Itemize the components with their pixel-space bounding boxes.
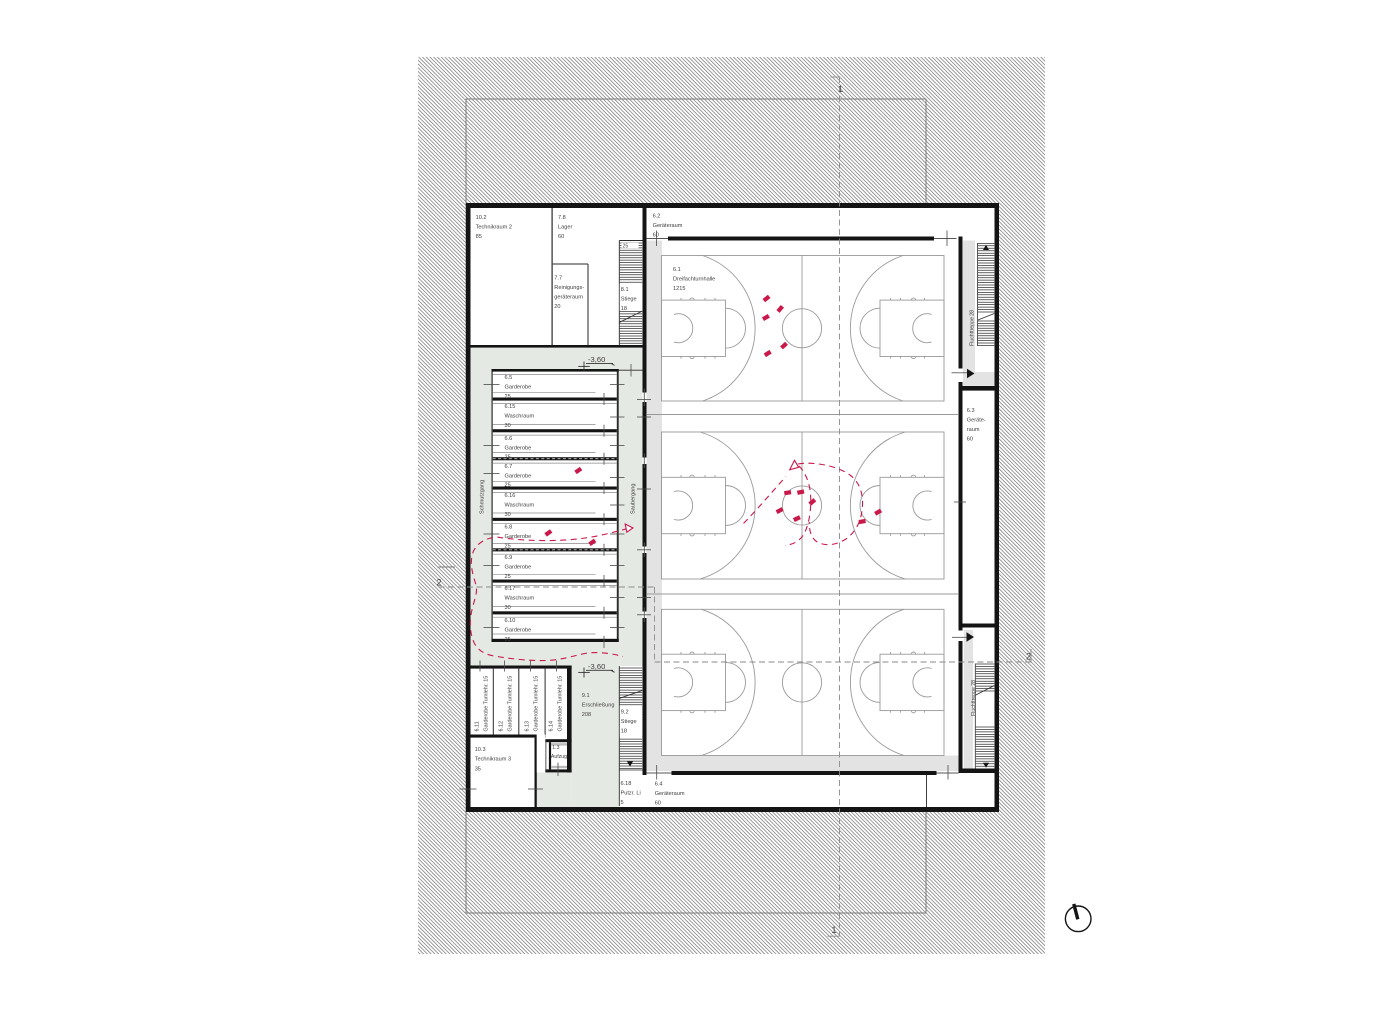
svg-text:Saubergang: Saubergang bbox=[630, 484, 636, 514]
svg-text:60: 60 bbox=[653, 233, 659, 239]
svg-text:6.14: 6.14 bbox=[549, 721, 555, 732]
svg-text:6.13: 6.13 bbox=[524, 721, 530, 732]
svg-text:Fluchttreppe 28: Fluchttreppe 28 bbox=[970, 310, 976, 346]
svg-text:Aufzug: Aufzug bbox=[551, 754, 567, 760]
svg-text:18: 18 bbox=[621, 306, 627, 312]
svg-text:8.1: 8.1 bbox=[621, 287, 629, 293]
svg-text:Geräte-: Geräte- bbox=[967, 418, 986, 424]
svg-text:6.18: 6.18 bbox=[621, 781, 632, 787]
svg-text:25: 25 bbox=[623, 243, 629, 249]
svg-text:-3,60: -3,60 bbox=[588, 662, 605, 671]
svg-text:Geräteraum: Geräteraum bbox=[655, 791, 685, 797]
svg-text:Lager: Lager bbox=[558, 225, 572, 231]
svg-text:1: 1 bbox=[838, 84, 843, 94]
svg-text:Garderobe: Garderobe bbox=[505, 628, 532, 634]
svg-text:6.7: 6.7 bbox=[505, 464, 513, 470]
svg-text:1.3: 1.3 bbox=[552, 745, 559, 751]
svg-text:6.3: 6.3 bbox=[967, 408, 975, 414]
svg-text:Technikraum 2: Technikraum 2 bbox=[476, 225, 512, 231]
svg-text:Waschraum: Waschraum bbox=[505, 596, 535, 602]
svg-text:Garderobe: Garderobe bbox=[505, 473, 532, 479]
svg-text:30: 30 bbox=[505, 512, 511, 518]
svg-text:geräteraum: geräteraum bbox=[554, 294, 583, 300]
svg-text:208: 208 bbox=[582, 712, 591, 718]
svg-text:Garderobe: Garderobe bbox=[505, 565, 532, 571]
svg-text:Schmutzgang: Schmutzgang bbox=[479, 480, 485, 514]
svg-text:5: 5 bbox=[621, 800, 624, 806]
svg-text:18: 18 bbox=[621, 729, 627, 735]
svg-text:Technikraum 3: Technikraum 3 bbox=[475, 757, 511, 763]
svg-text:Garderobe: Garderobe bbox=[505, 385, 532, 391]
svg-text:9.1: 9.1 bbox=[582, 693, 590, 699]
svg-text:6.10: 6.10 bbox=[505, 618, 516, 624]
svg-text:9.2: 9.2 bbox=[621, 710, 629, 716]
svg-text:6.8: 6.8 bbox=[505, 525, 513, 531]
svg-text:6.5: 6.5 bbox=[505, 375, 513, 381]
svg-text:60: 60 bbox=[655, 801, 661, 807]
svg-text:Stiege: Stiege bbox=[621, 297, 637, 303]
svg-text:2: 2 bbox=[1026, 652, 1031, 662]
svg-text:6.9: 6.9 bbox=[505, 555, 513, 561]
svg-text:Erschließung: Erschließung bbox=[582, 703, 615, 709]
svg-text:Waschraum: Waschraum bbox=[505, 414, 535, 420]
svg-text:30: 30 bbox=[505, 423, 511, 429]
svg-text:6.15: 6.15 bbox=[505, 404, 516, 410]
svg-text:25: 25 bbox=[505, 483, 511, 489]
svg-text:Garderobe Turnlehr. 15: Garderobe Turnlehr. 15 bbox=[507, 676, 513, 732]
svg-text:1: 1 bbox=[832, 925, 837, 935]
svg-text:Fluchttreppe 28: Fluchttreppe 28 bbox=[971, 680, 977, 716]
svg-text:6.4: 6.4 bbox=[655, 782, 663, 788]
svg-text:30: 30 bbox=[505, 605, 511, 611]
svg-text:Garderobe: Garderobe bbox=[505, 445, 532, 451]
svg-text:6.12: 6.12 bbox=[498, 721, 504, 732]
svg-text:raum: raum bbox=[967, 427, 980, 433]
svg-text:6.16: 6.16 bbox=[505, 493, 516, 499]
svg-text:25: 25 bbox=[505, 637, 511, 643]
svg-text:10.3: 10.3 bbox=[475, 747, 486, 753]
svg-text:Stiege: Stiege bbox=[621, 719, 637, 725]
svg-text:7.7: 7.7 bbox=[554, 275, 562, 281]
svg-text:60: 60 bbox=[967, 437, 973, 443]
svg-text:35: 35 bbox=[475, 766, 481, 772]
svg-text:Geräteraum: Geräteraum bbox=[653, 223, 683, 229]
svg-text:-3,60: -3,60 bbox=[588, 355, 605, 364]
svg-text:Waschraum: Waschraum bbox=[505, 503, 535, 509]
svg-text:Reinigungs-: Reinigungs- bbox=[554, 285, 584, 291]
svg-text:Garderobe Turnlehr. 15: Garderobe Turnlehr. 15 bbox=[558, 676, 564, 732]
svg-text:25: 25 bbox=[505, 574, 511, 580]
svg-text:Garderobe Turnlehr. 15: Garderobe Turnlehr. 15 bbox=[483, 676, 489, 732]
svg-text:6.1: 6.1 bbox=[673, 267, 681, 273]
svg-text:20: 20 bbox=[554, 304, 560, 310]
svg-text:2: 2 bbox=[437, 578, 442, 588]
svg-text:Garderobe Turnlehr. 15: Garderobe Turnlehr. 15 bbox=[533, 676, 539, 732]
svg-text:60: 60 bbox=[558, 234, 564, 240]
svg-text:7.8: 7.8 bbox=[558, 215, 566, 221]
svg-text:Putzr. Li: Putzr. Li bbox=[621, 791, 641, 797]
svg-text:25: 25 bbox=[505, 394, 511, 400]
svg-text:6.6: 6.6 bbox=[505, 436, 513, 442]
svg-text:10.2: 10.2 bbox=[476, 215, 487, 221]
svg-text:25: 25 bbox=[505, 543, 511, 549]
svg-text:6.2: 6.2 bbox=[653, 214, 661, 220]
svg-text:6.11: 6.11 bbox=[474, 721, 480, 731]
svg-text:85: 85 bbox=[476, 234, 482, 240]
svg-text:Dreifachturnhalle: Dreifachturnhalle bbox=[673, 277, 715, 283]
svg-text:25: 25 bbox=[505, 455, 511, 461]
svg-text:1215: 1215 bbox=[673, 286, 685, 292]
